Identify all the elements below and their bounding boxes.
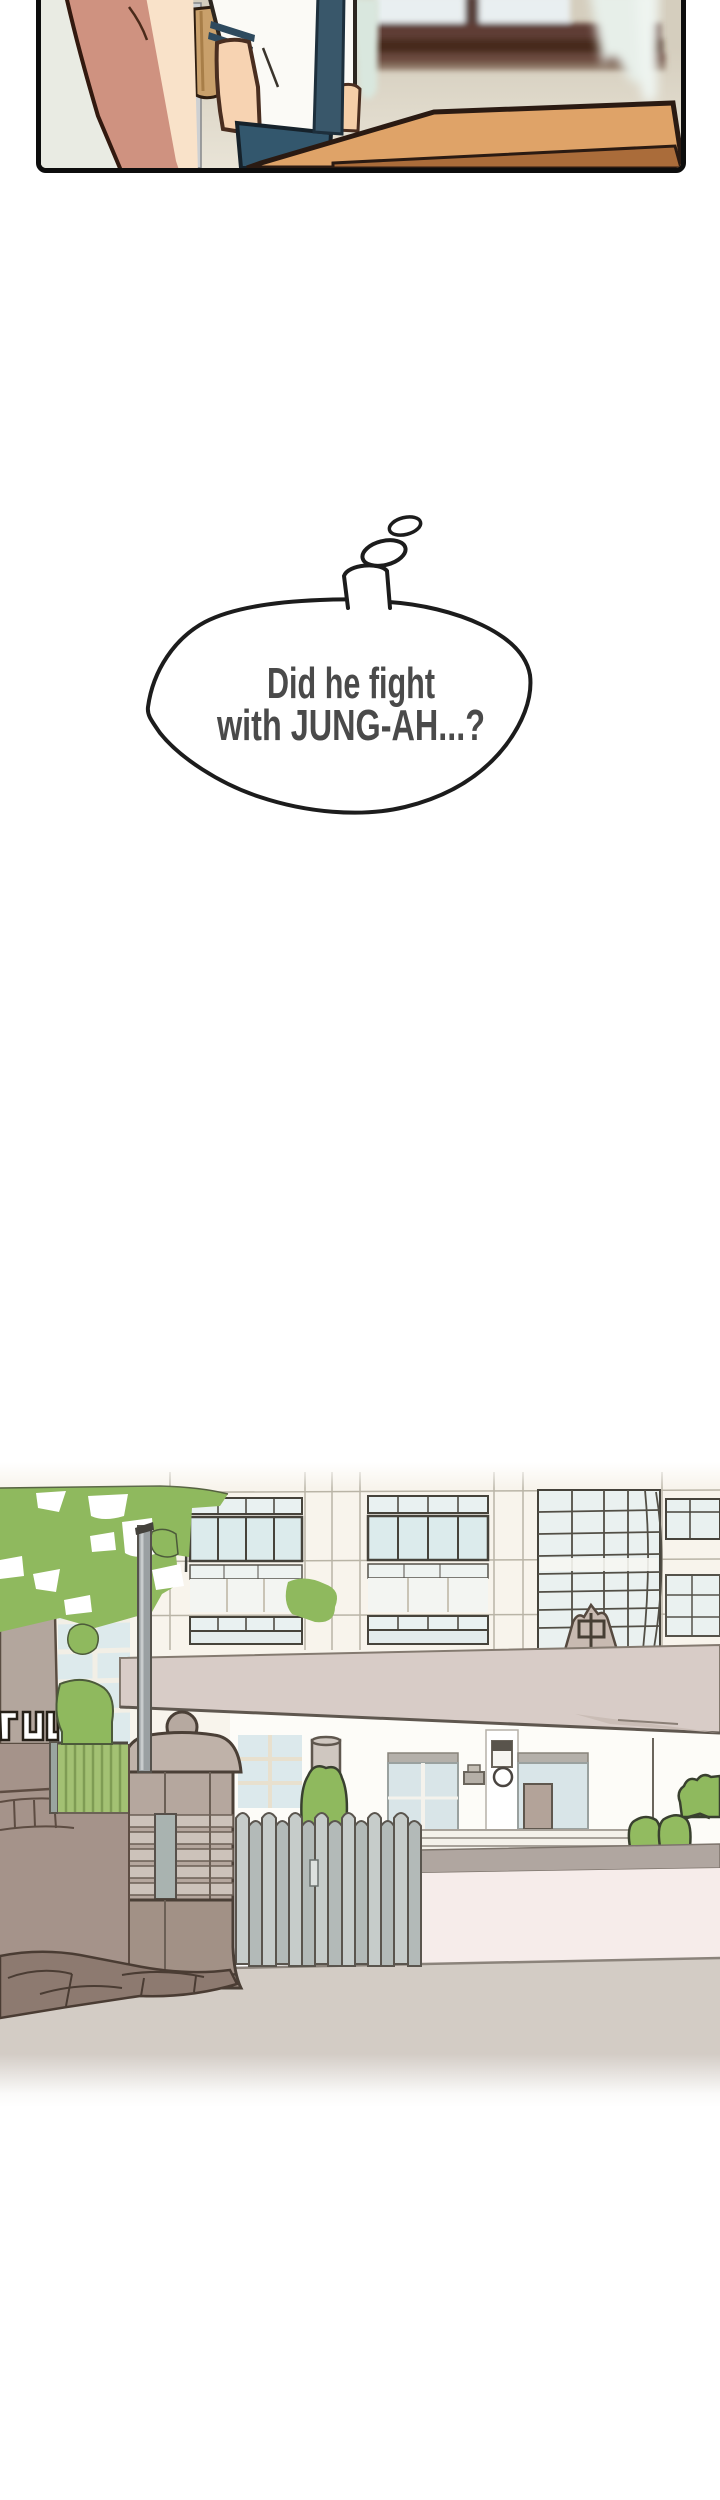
svg-text:with JUNG-AH...?: with JUNG-AH...?	[216, 701, 485, 750]
